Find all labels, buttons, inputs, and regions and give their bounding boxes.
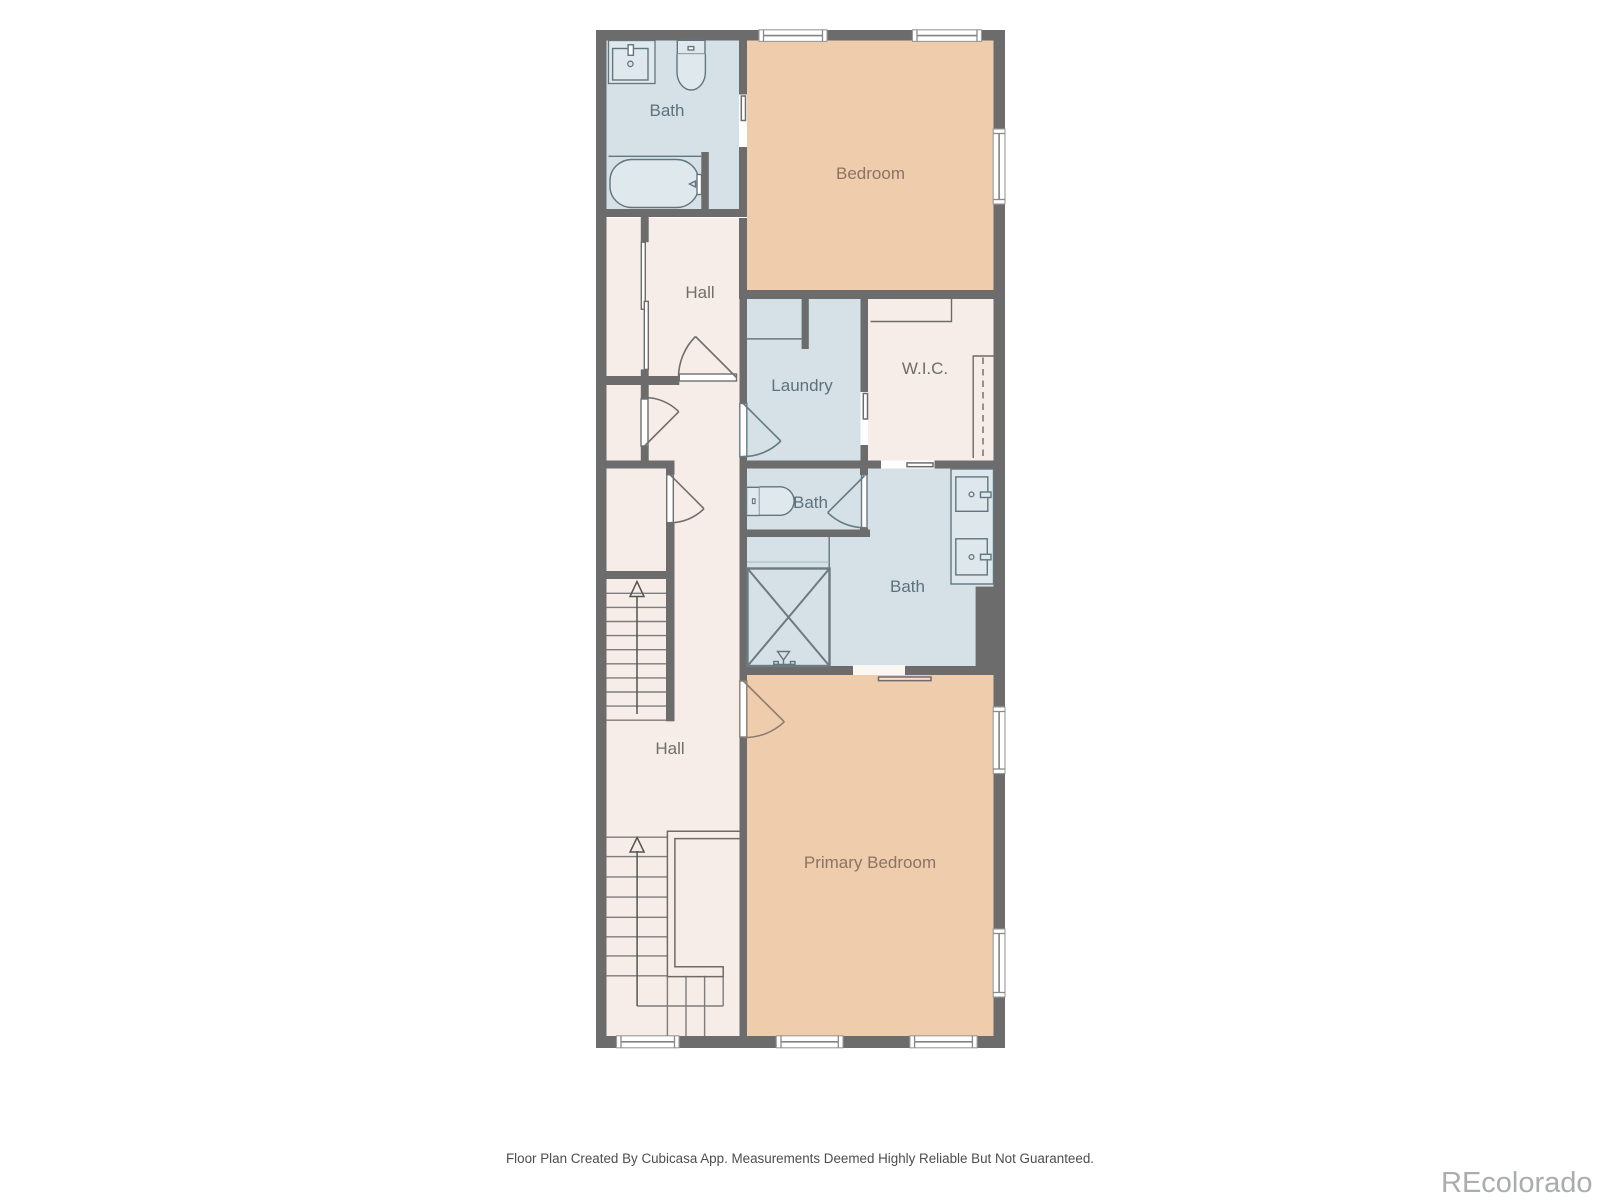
svg-text:W.I.C.: W.I.C.: [902, 359, 948, 378]
svg-text:Bath: Bath: [890, 577, 925, 596]
svg-text:Bath: Bath: [650, 101, 685, 120]
svg-text:Hall: Hall: [655, 739, 684, 758]
svg-text:Bedroom: Bedroom: [836, 164, 905, 183]
svg-text:Primary Bedroom: Primary Bedroom: [804, 853, 936, 872]
svg-text:Bath: Bath: [793, 493, 828, 512]
svg-text:Hall: Hall: [685, 283, 714, 302]
svg-text:Laundry: Laundry: [771, 376, 833, 395]
